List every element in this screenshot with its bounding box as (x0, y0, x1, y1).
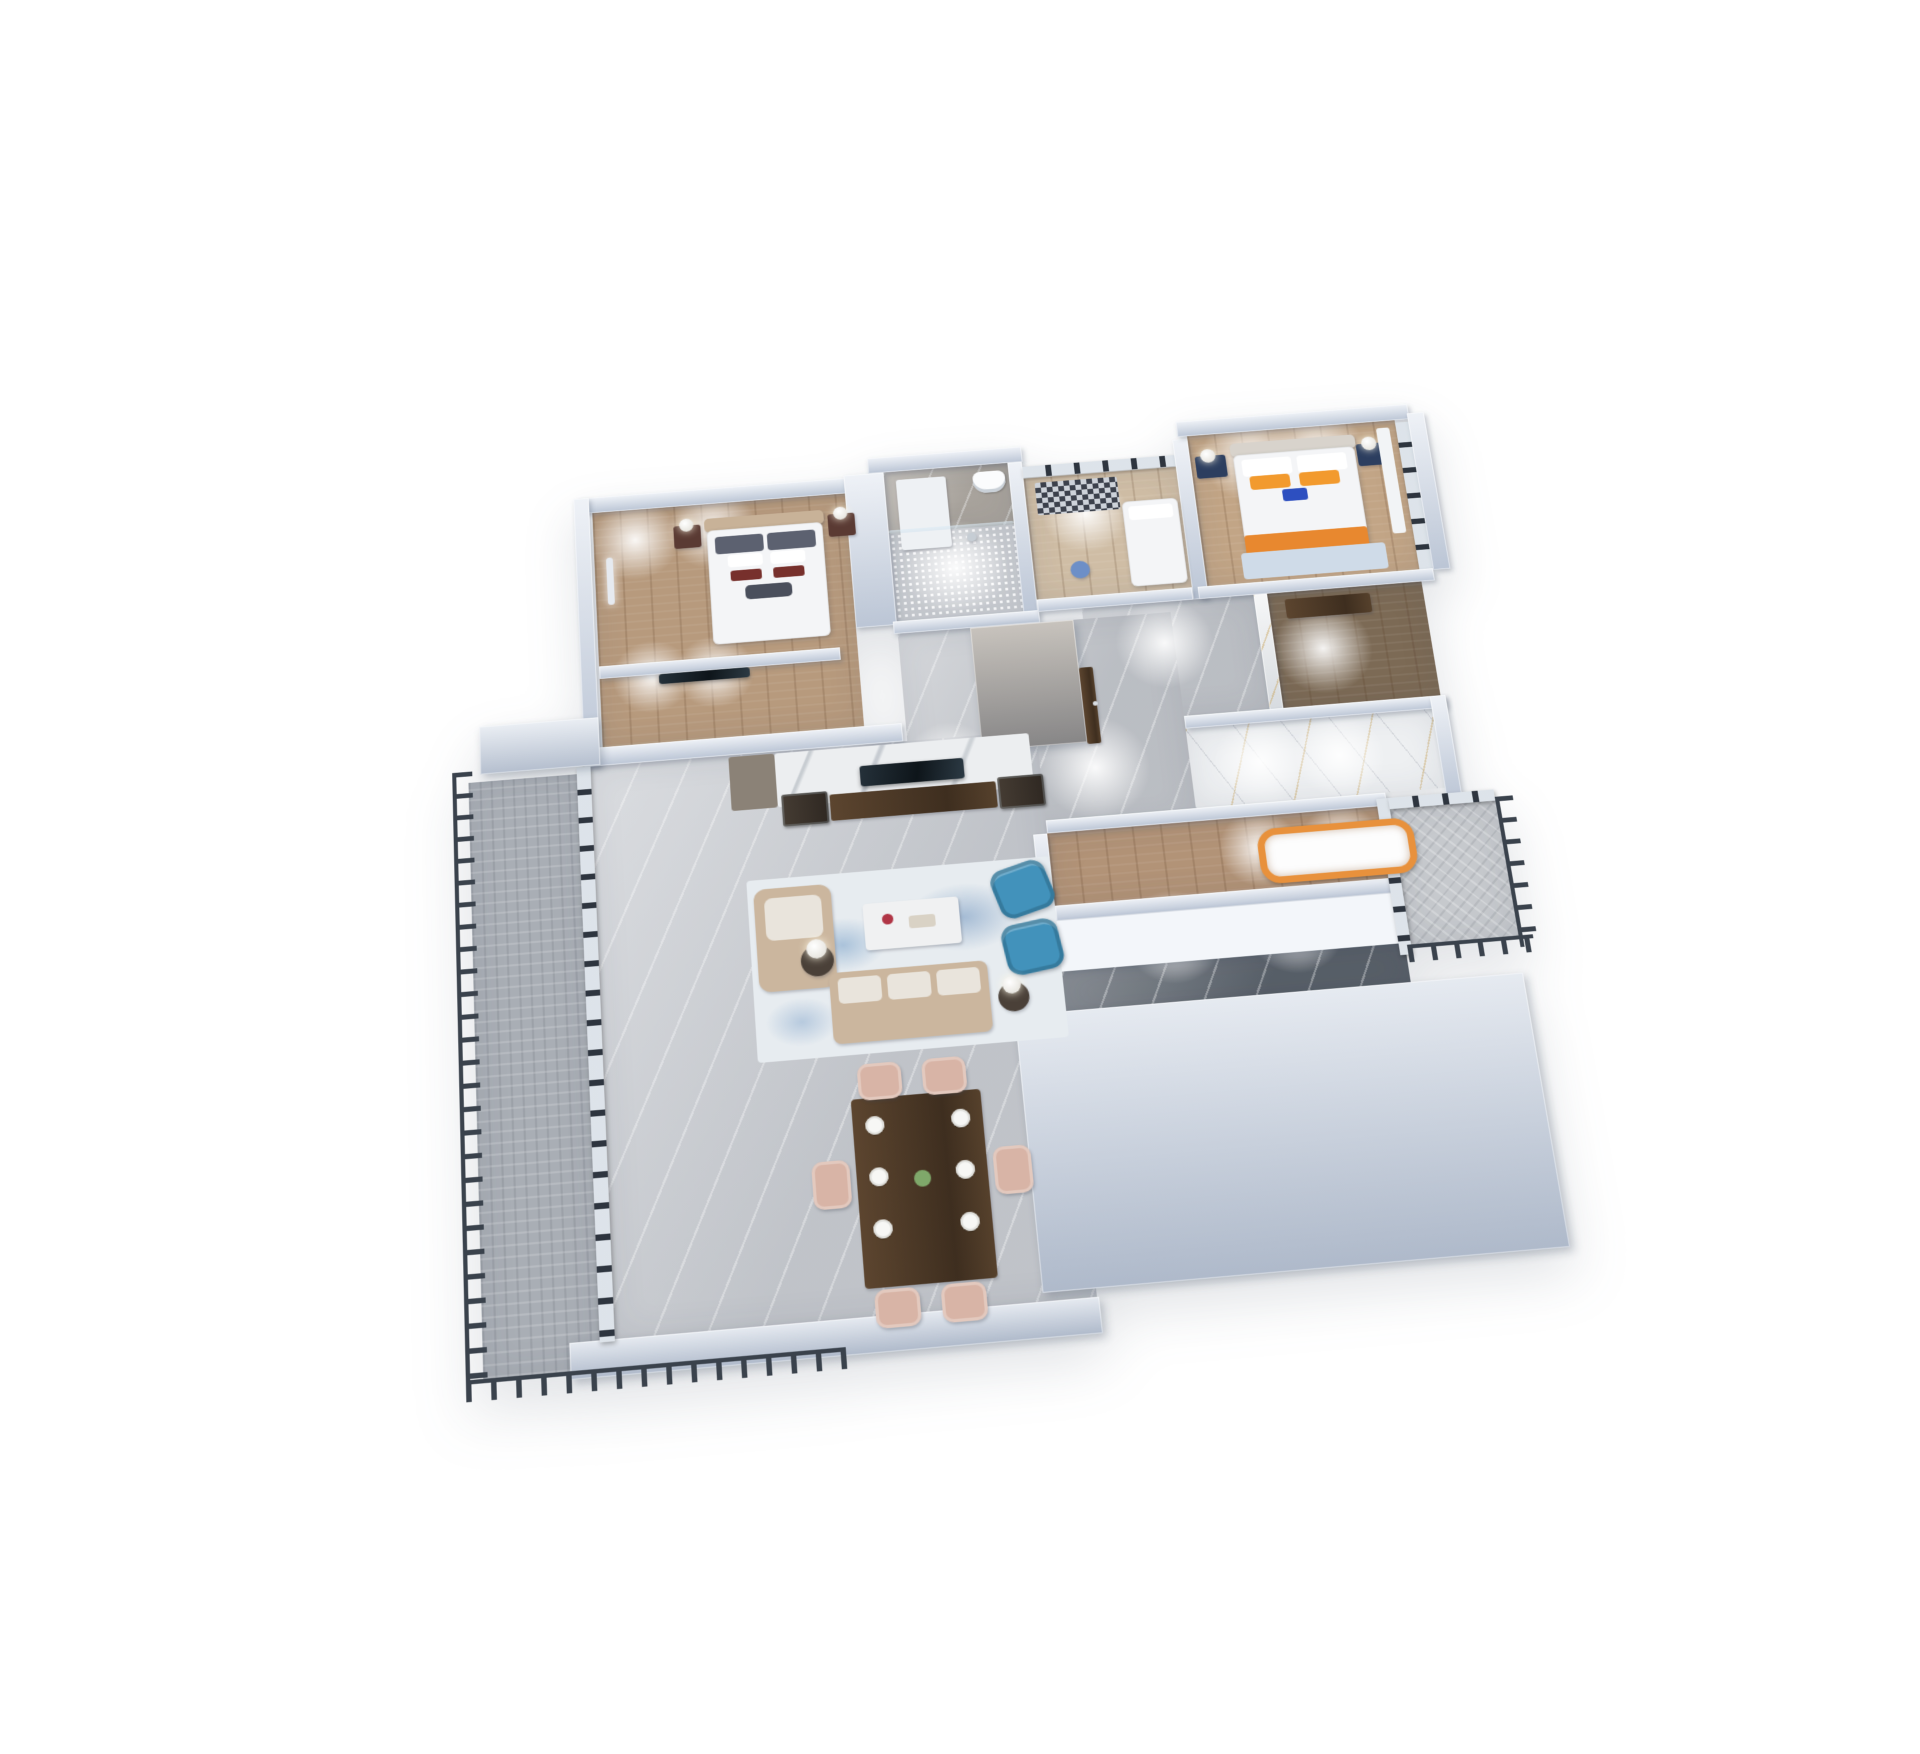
living-cabinet-right (997, 774, 1046, 809)
living-cabinet-left (781, 791, 829, 827)
entry-wardrobe-block (970, 620, 1087, 751)
coffee-table-tray (908, 914, 936, 929)
bathroom-door-panel (896, 476, 953, 550)
dining-chair-east (992, 1144, 1035, 1195)
master-cushion-blue (1282, 488, 1309, 502)
sofa-cushion-1 (837, 975, 882, 1004)
dining-chair-south-1 (874, 1287, 922, 1330)
dining-chair-north-2 (921, 1056, 968, 1096)
dining-chair-west (811, 1160, 853, 1211)
wall-balcony-north-block (479, 717, 600, 774)
chaise-cushion (764, 894, 824, 941)
sofa-cushion-3 (936, 967, 981, 996)
kids-wardrobe-textile (1035, 477, 1121, 516)
dining-chair-north-1 (856, 1061, 903, 1101)
screenshot-canvas: { "scene": { "description": "Photorealis… (0, 0, 1920, 1754)
sofa-cushion-2 (887, 971, 932, 1000)
wall-outer-southeast-block (1015, 973, 1570, 1293)
floor-plan-3d (383, 311, 1641, 1426)
dining-chair-south-2 (940, 1281, 988, 1323)
tv-wall-taupe-panel (728, 754, 778, 811)
